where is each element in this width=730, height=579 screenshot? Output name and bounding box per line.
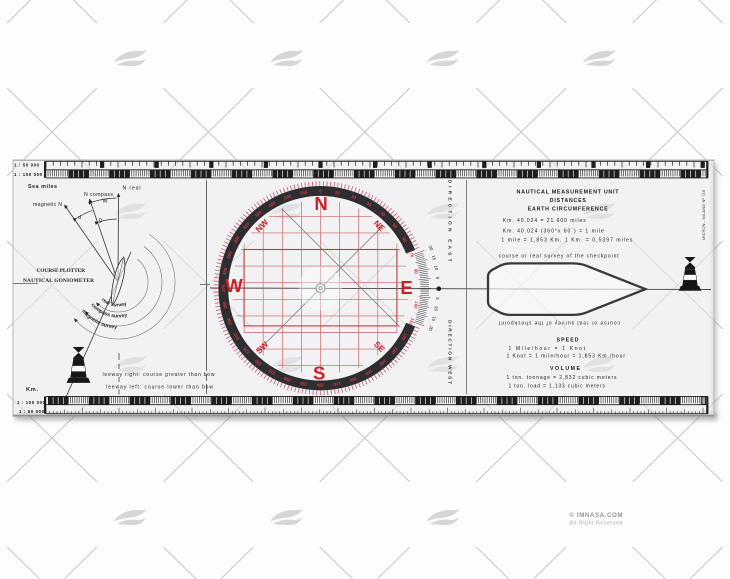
svg-text:1 Knot = 1 mile/hour = 1: 1 Knot = 1 mile/hour = 1,853 Km./hour xyxy=(507,353,626,359)
svg-text:Km. 40.024 = 21.600 miles: Km. 40.024 = 21.600 miles xyxy=(503,218,587,224)
svg-text:All Right Reserved: All Right Reserved xyxy=(570,521,623,527)
svg-text:leeway right: course greater t: leeway right: course greater than bow xyxy=(103,372,215,378)
svg-text:NAUTICAL GONIOMETER: NAUTICAL GONIOMETER xyxy=(23,278,94,284)
svg-text:N: N xyxy=(314,193,327,214)
svg-text:1 ton. load = 1,133 cubic: 1 ton. load = 1,133 cubic meters xyxy=(509,383,606,389)
svg-text:W: W xyxy=(225,275,243,296)
svg-text:MICRON - MILANO Nº 719: MICRON - MILANO Nº 719 xyxy=(701,190,706,240)
svg-text:course or real survey of: course or real survey of the checkpoint xyxy=(499,253,620,259)
svg-text:Sea miles: Sea miles xyxy=(28,184,57,190)
svg-text:SPEED: SPEED xyxy=(557,337,579,343)
svg-text:DISTANCES: DISTANCES xyxy=(550,198,587,204)
svg-text:NAUTICAL MEASUREMENT UNIT: NAUTICAL MEASUREMENT UNIT xyxy=(517,190,620,196)
svg-text:d: d xyxy=(78,215,81,221)
svg-text:leeway left: course lower than: leeway left: course lower than bow xyxy=(106,385,213,391)
svg-text:E: E xyxy=(400,277,412,298)
svg-text:VOLUME: VOLUME xyxy=(550,366,581,372)
svg-text:EARTH CIRCUMFERENCE: EARTH CIRCUMFERENCE xyxy=(528,206,609,212)
svg-text:1 mile = 1,853 Km. 1: 1 mile = 1,853 Km. 1 Km. = 0,5397 miles xyxy=(501,238,633,244)
svg-text:N real: N real xyxy=(123,186,141,192)
svg-text:1 : 100 000: 1 : 100 000 xyxy=(17,400,46,405)
svg-text:1 : 100 000: 1 : 100 000 xyxy=(14,172,43,177)
svg-text:D: D xyxy=(99,219,103,225)
svg-text:course or real survey of: course or real survey of the checkpoint xyxy=(498,319,620,325)
svg-text:N compass: N compass xyxy=(84,192,113,198)
svg-text:COURSE PLOTTER: COURSE PLOTTER xyxy=(37,268,86,274)
svg-text:Km. 40.024 (360°x 60´) =: Km. 40.024 (360°x 60´) = 1 mile xyxy=(503,228,604,234)
svg-text:1 : 50 000: 1 : 50 000 xyxy=(19,409,45,414)
svg-text:S: S xyxy=(313,363,325,384)
svg-text:magnetic N: magnetic N xyxy=(33,202,62,208)
svg-text:1 : 50 000: 1 : 50 000 xyxy=(14,163,40,168)
svg-text:© IMNASA.COM: © IMNASA.COM xyxy=(570,512,623,519)
svg-text:Km.: Km. xyxy=(26,387,38,393)
svg-text:1 ton. tonnage = 2,832 cub: 1 ton. tonnage = 2,832 cubic meters xyxy=(507,375,618,381)
